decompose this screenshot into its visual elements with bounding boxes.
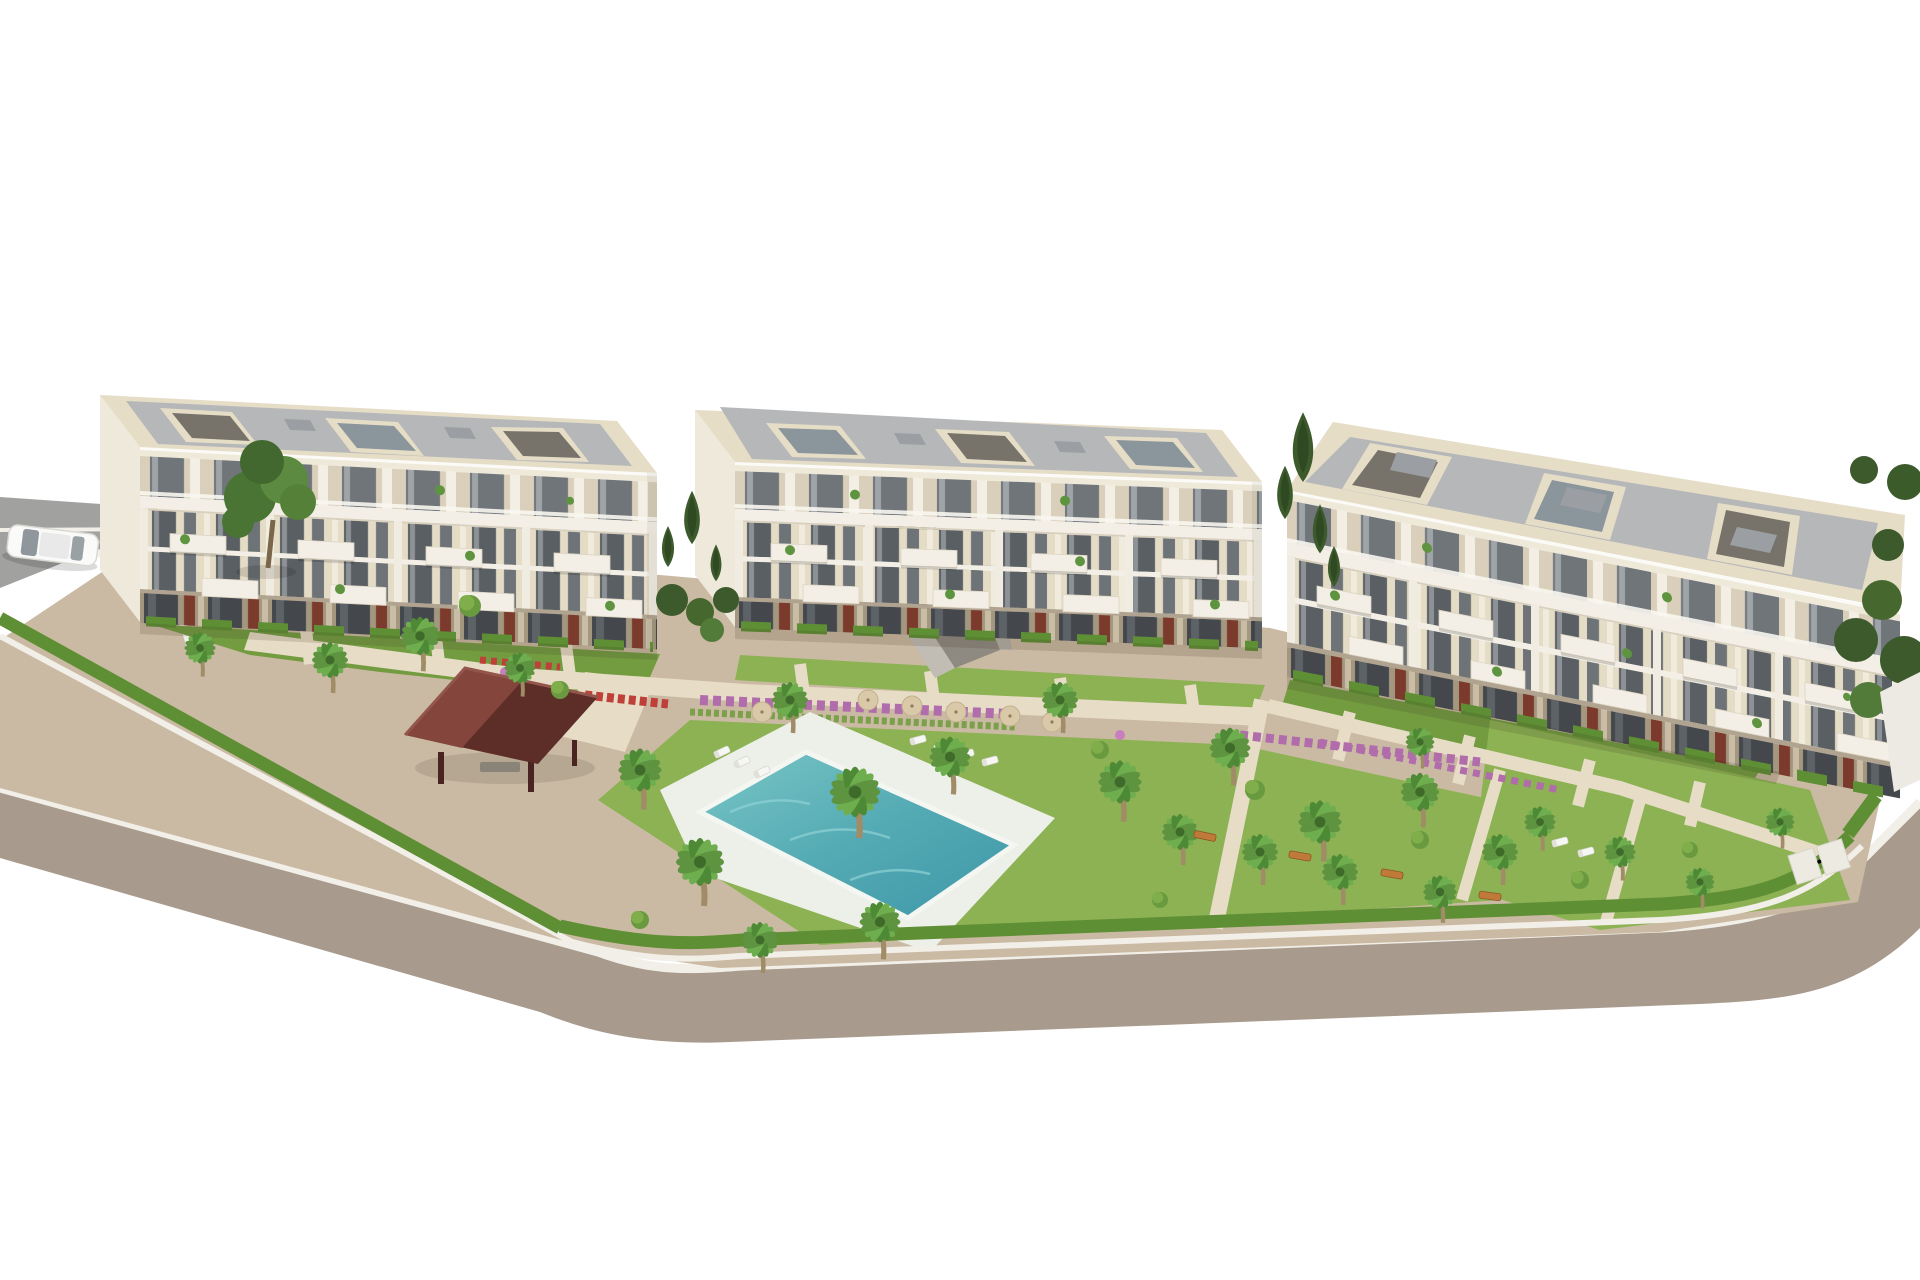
building-middle: [695, 407, 1262, 659]
render-canvas: Aerial 3D rendering of a new-build resid…: [0, 0, 1920, 1280]
site-render: [0, 0, 1920, 1280]
building-middle-facade: [735, 462, 1262, 648]
building-left-facade: [140, 447, 657, 649]
building-left: [100, 395, 657, 660]
